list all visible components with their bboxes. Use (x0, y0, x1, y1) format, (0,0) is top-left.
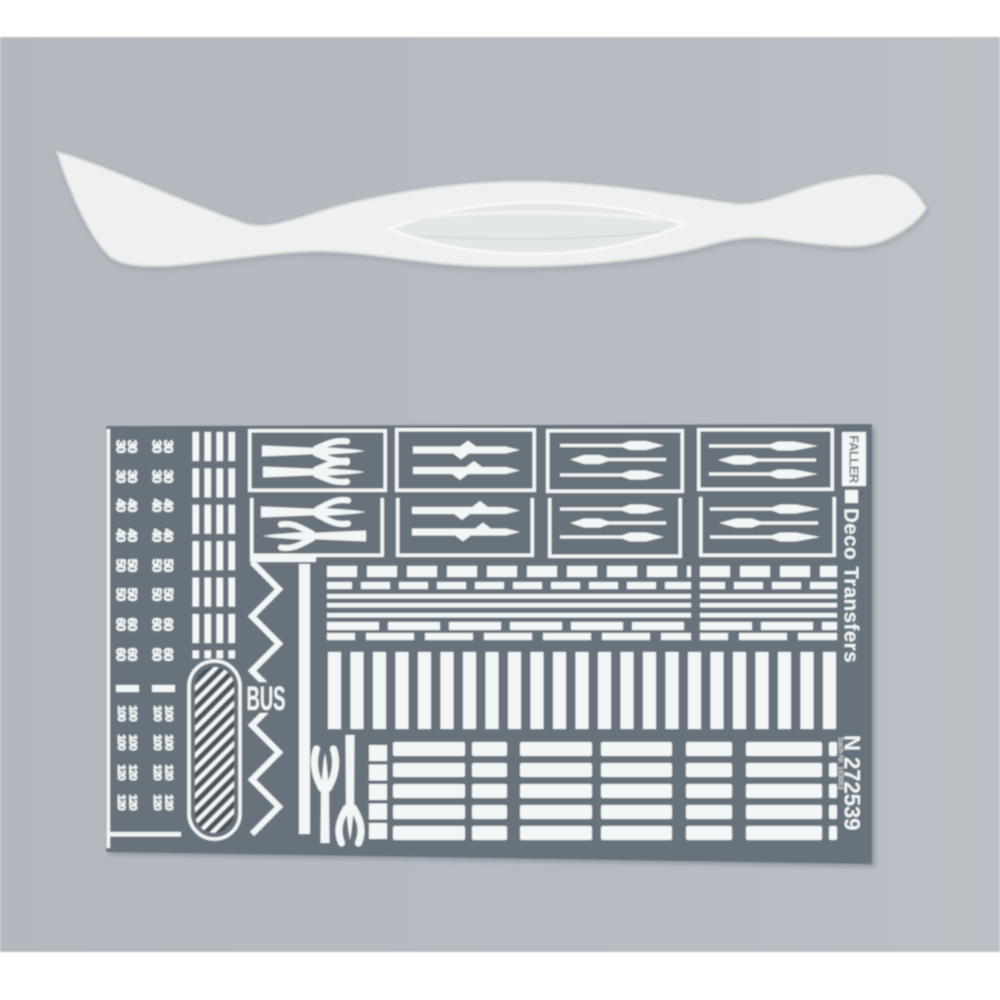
svg-text:Deco Transfers: Deco Transfers (840, 508, 863, 663)
svg-text:40: 40 (161, 499, 176, 512)
svg-text:60: 60 (125, 648, 140, 661)
svg-text:100: 100 (127, 734, 139, 750)
svg-text:50: 50 (125, 559, 140, 572)
svg-text:40: 40 (125, 529, 140, 542)
svg-text:FALLER: FALLER (847, 435, 862, 484)
svg-text:100: 100 (151, 734, 163, 750)
svg-text:30: 30 (125, 470, 140, 483)
svg-text:30: 30 (125, 440, 140, 453)
svg-text:120: 120 (163, 794, 175, 810)
svg-text:BUS: BUS (247, 680, 286, 718)
svg-text:50: 50 (125, 588, 140, 601)
svg-text:60: 60 (161, 648, 176, 661)
svg-text:120: 120 (151, 764, 163, 780)
svg-text:100: 100 (115, 705, 127, 721)
svg-text:60: 60 (161, 618, 176, 631)
svg-text:40: 40 (161, 529, 176, 542)
svg-text:50: 50 (161, 588, 176, 601)
svg-text:60: 60 (125, 618, 140, 631)
svg-text:30: 30 (161, 440, 176, 453)
svg-text:100: 100 (163, 734, 175, 750)
svg-text:120: 120 (163, 764, 175, 780)
svg-text:Sach-Nr. 163063: Sach-Nr. 163063 (837, 737, 844, 790)
svg-text:100: 100 (127, 705, 139, 721)
svg-text:100: 100 (115, 734, 127, 750)
svg-text:40: 40 (125, 499, 140, 512)
svg-text:50: 50 (161, 559, 176, 572)
svg-text:30: 30 (161, 470, 176, 483)
svg-text:100: 100 (163, 705, 175, 721)
svg-text:120: 120 (127, 764, 139, 780)
svg-text:120: 120 (115, 764, 127, 780)
svg-text:100: 100 (151, 705, 163, 721)
svg-text:120: 120 (151, 794, 163, 810)
svg-text:120: 120 (115, 794, 127, 810)
svg-text:120: 120 (127, 794, 139, 810)
